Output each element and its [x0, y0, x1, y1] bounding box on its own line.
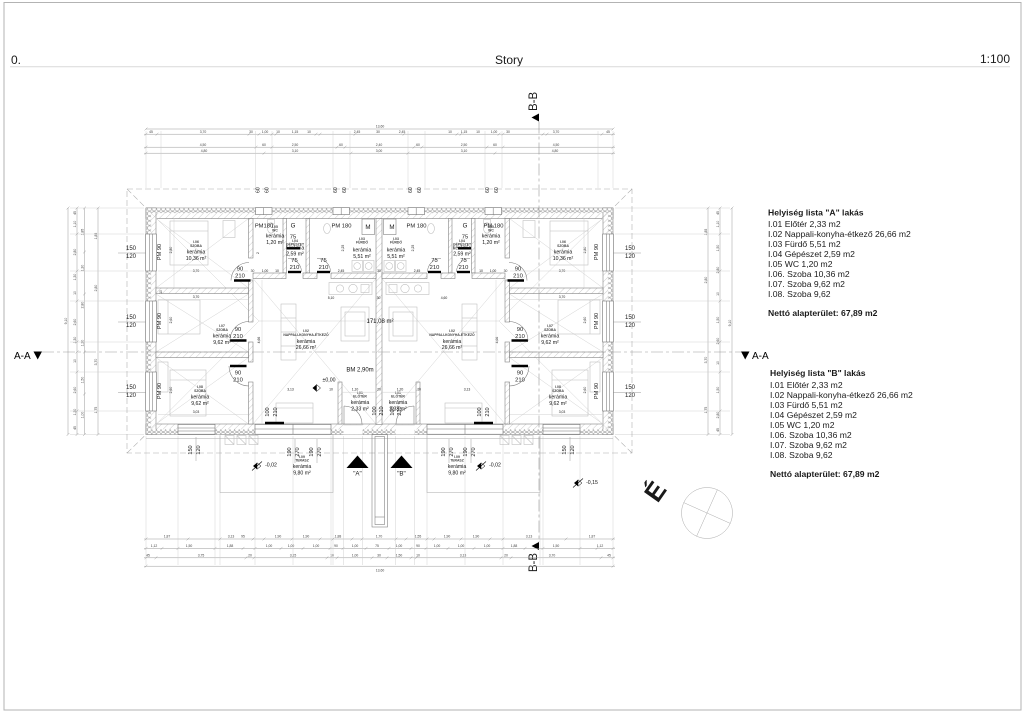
svg-text:kerámia: kerámia	[554, 250, 573, 256]
svg-text:45: 45	[73, 211, 77, 215]
svg-text:1,88: 1,88	[335, 535, 342, 539]
svg-text:45: 45	[149, 130, 153, 134]
svg-text:90: 90	[517, 327, 523, 333]
svg-text:1,00: 1,00	[491, 130, 498, 134]
svg-text:2,60: 2,60	[583, 387, 587, 394]
svg-text:2,33 m²: 2,33 m²	[351, 407, 369, 413]
svg-text:PM 180: PM 180	[407, 224, 427, 230]
svg-text:±0,00: ±0,00	[323, 378, 336, 384]
svg-text:-0,02: -0,02	[489, 463, 501, 469]
svg-text:SZOBA: SZOBA	[190, 244, 202, 248]
svg-text:1,00: 1,00	[396, 544, 403, 548]
svg-text:kerámia: kerámia	[482, 234, 501, 240]
svg-text:100: 100	[390, 406, 396, 415]
svg-text:ELŐTÉR: ELŐTÉR	[391, 394, 405, 399]
svg-text:60: 60	[416, 143, 420, 147]
svg-text:1,50: 1,50	[716, 317, 720, 324]
svg-text:1,50: 1,50	[716, 387, 720, 394]
svg-text:210: 210	[273, 407, 279, 416]
svg-text:270: 270	[295, 447, 301, 456]
svg-text:1,20 m²: 1,20 m²	[482, 240, 500, 246]
svg-text:B-B: B-B	[528, 553, 540, 573]
svg-text:90: 90	[517, 371, 523, 377]
svg-text:150: 150	[562, 445, 568, 454]
svg-text:210: 210	[430, 265, 440, 271]
svg-text:1,00: 1,00	[288, 544, 295, 548]
svg-text:1,75: 1,75	[704, 407, 708, 414]
svg-text:4,50: 4,50	[200, 143, 207, 147]
svg-text:45: 45	[606, 130, 610, 134]
svg-text:20: 20	[377, 387, 381, 391]
svg-text:1,00: 1,00	[458, 544, 465, 548]
svg-text:kerámia: kerámia	[389, 400, 408, 406]
svg-text:1,50: 1,50	[716, 245, 720, 252]
svg-text:TERASZ: TERASZ	[295, 459, 309, 463]
svg-text:150: 150	[625, 246, 636, 252]
svg-text:2,45: 2,45	[399, 130, 406, 134]
svg-text:10: 10	[716, 361, 720, 365]
svg-text:10: 10	[275, 269, 279, 273]
svg-text:G: G	[463, 223, 468, 230]
svg-text:60: 60	[262, 143, 266, 147]
svg-text:A-A: A-A	[14, 351, 31, 362]
svg-text:45: 45	[716, 428, 720, 432]
svg-text:1,12: 1,12	[151, 544, 158, 548]
svg-text:PM 90: PM 90	[157, 244, 163, 260]
svg-text:270: 270	[471, 447, 477, 456]
svg-text:10: 10	[716, 292, 720, 296]
svg-text:60: 60	[485, 187, 491, 193]
svg-text:-0,15: -0,15	[586, 480, 598, 486]
svg-text:2,60: 2,60	[169, 317, 173, 324]
svg-text:4,60: 4,60	[441, 296, 448, 300]
svg-text:100: 100	[372, 406, 378, 415]
svg-text:1,30: 1,30	[73, 337, 77, 344]
svg-text:1,50: 1,50	[396, 554, 403, 558]
svg-text:120: 120	[625, 254, 636, 260]
svg-text:2,45: 2,45	[414, 269, 421, 273]
svg-text:30: 30	[377, 269, 381, 273]
svg-text:PM 90: PM 90	[157, 313, 163, 329]
svg-text:2,60: 2,60	[169, 387, 173, 394]
svg-text:2,80: 2,80	[73, 249, 77, 256]
svg-text:210: 210	[513, 274, 523, 280]
svg-text:210: 210	[235, 274, 245, 280]
svg-text:4,66: 4,66	[495, 337, 499, 344]
svg-text:120: 120	[570, 445, 576, 454]
svg-text:10: 10	[329, 387, 333, 391]
svg-text:M: M	[389, 224, 394, 231]
svg-text:3,03: 3,03	[193, 410, 200, 414]
svg-text:2: 2	[256, 252, 260, 254]
svg-text:1,10: 1,10	[352, 387, 359, 391]
svg-text:kerámia: kerámia	[549, 395, 568, 401]
svg-text:3,13: 3,13	[526, 535, 533, 539]
svg-text:NAPPALI-KONYHA-ÉTKEZŐ: NAPPALI-KONYHA-ÉTKEZŐ	[283, 332, 329, 337]
svg-text:2,80: 2,80	[704, 277, 708, 284]
svg-text:1,90: 1,90	[444, 535, 451, 539]
svg-text:26,66 m²: 26,66 m²	[442, 345, 463, 351]
svg-text:210: 210	[290, 265, 300, 271]
svg-text:1,00: 1,00	[490, 269, 497, 273]
svg-text:2,45: 2,45	[354, 130, 361, 134]
svg-text:60: 60	[256, 187, 262, 193]
svg-text:1,00: 1,00	[352, 544, 359, 548]
svg-text:Helyiség lista "B" lakás: Helyiség lista "B" lakás	[770, 368, 866, 378]
svg-text:150: 150	[126, 385, 137, 391]
svg-text:30: 30	[376, 130, 380, 134]
svg-text:PM 90: PM 90	[594, 244, 600, 260]
svg-text:FÜRDŐ: FÜRDŐ	[390, 240, 402, 245]
svg-text:1,50: 1,50	[553, 544, 560, 548]
svg-text:9,62 m²: 9,62 m²	[213, 340, 231, 346]
svg-text:Nettó alapterület: 67,89 m2: Nettó alapterület: 67,89 m2	[768, 308, 878, 318]
svg-text:1,50: 1,50	[186, 544, 193, 548]
svg-text:9,10: 9,10	[64, 318, 68, 325]
svg-text:G: G	[291, 223, 296, 230]
svg-text:1,00: 1,00	[80, 412, 84, 419]
svg-text:I.01 Előtér 2,33 m2: I.01 Előtér 2,33 m2	[768, 219, 841, 229]
svg-text:5,10: 5,10	[328, 296, 335, 300]
svg-text:45: 45	[607, 554, 611, 558]
svg-text:PM 90: PM 90	[594, 313, 600, 329]
svg-text:2,80: 2,80	[94, 285, 98, 292]
svg-text:1,55: 1,55	[415, 535, 422, 539]
svg-text:95: 95	[241, 535, 245, 539]
svg-text:3,75: 3,75	[198, 554, 205, 558]
svg-text:10: 10	[479, 269, 483, 273]
svg-text:I.07. Szoba 9,62 m2: I.07. Szoba 9,62 m2	[770, 440, 847, 450]
svg-text:2,80: 2,80	[80, 302, 84, 309]
svg-text:1,87: 1,87	[164, 535, 171, 539]
svg-text:120: 120	[126, 254, 137, 260]
svg-text:1,20 m²: 1,20 m²	[266, 240, 284, 246]
svg-text:270: 270	[317, 447, 323, 456]
svg-text:30: 30	[377, 554, 381, 558]
svg-text:120: 120	[126, 393, 137, 399]
svg-text:1,20: 1,20	[397, 387, 404, 391]
svg-text:150: 150	[126, 246, 137, 252]
svg-text:2,50: 2,50	[461, 143, 468, 147]
svg-text:100: 100	[265, 407, 271, 416]
svg-text:120: 120	[625, 393, 636, 399]
svg-text:1,88: 1,88	[511, 544, 518, 548]
svg-text:"A": "A"	[353, 471, 362, 478]
svg-text:210: 210	[397, 406, 403, 415]
svg-text:2,60: 2,60	[716, 338, 720, 345]
svg-text:120: 120	[126, 323, 137, 329]
svg-text:PM 90: PM 90	[157, 383, 163, 399]
svg-text:SZOBA: SZOBA	[544, 328, 556, 332]
svg-text:9,62 m²: 9,62 m²	[191, 401, 209, 407]
svg-text:150: 150	[126, 315, 137, 321]
svg-text:SZOBA: SZOBA	[552, 389, 564, 393]
svg-text:90: 90	[416, 544, 420, 548]
svg-text:A-A: A-A	[752, 351, 769, 362]
svg-text:2,59 m²: 2,59 m²	[286, 252, 304, 258]
svg-text:0.: 0.	[11, 53, 21, 67]
svg-text:2,25: 2,25	[341, 245, 345, 252]
svg-text:270: 270	[449, 447, 455, 456]
svg-text:1,00: 1,00	[313, 544, 320, 548]
svg-text:10,36 m²: 10,36 m²	[553, 256, 574, 262]
svg-text:2,60: 2,60	[583, 317, 587, 324]
svg-text:1,90: 1,90	[303, 535, 310, 539]
svg-text:190: 190	[287, 447, 293, 456]
svg-text:2,25: 2,25	[411, 245, 415, 252]
svg-text:60: 60	[494, 187, 500, 193]
svg-text:1,85: 1,85	[94, 233, 98, 240]
svg-text:30: 30	[504, 269, 508, 273]
svg-text:210: 210	[459, 265, 469, 271]
svg-text:2,60: 2,60	[73, 387, 77, 394]
svg-text:1,10: 1,10	[716, 221, 720, 228]
svg-text:60: 60	[265, 187, 271, 193]
svg-text:1,90: 1,90	[275, 535, 282, 539]
svg-text:kerámia: kerámia	[387, 248, 406, 254]
svg-text:I.04 Gépészet 2,59 m2: I.04 Gépészet 2,59 m2	[770, 410, 857, 420]
svg-text:10: 10	[159, 290, 163, 294]
svg-text:26,66 m²: 26,66 m²	[296, 345, 317, 351]
svg-text:SZOBA: SZOBA	[216, 328, 228, 332]
svg-text:4,66: 4,66	[257, 337, 261, 344]
svg-text:10: 10	[448, 130, 452, 134]
svg-text:1:100: 1:100	[980, 52, 1010, 66]
svg-text:60: 60	[417, 187, 423, 193]
svg-text:9,80 m²: 9,80 m²	[293, 471, 311, 477]
svg-text:I.06. Szoba 10,36 m2: I.06. Szoba 10,36 m2	[768, 269, 850, 279]
svg-text:1,10: 1,10	[73, 221, 77, 228]
svg-text:60: 60	[339, 143, 343, 147]
svg-text:90: 90	[334, 544, 338, 548]
svg-text:5,51 m²: 5,51 m²	[387, 254, 405, 260]
svg-text:100: 100	[477, 407, 483, 416]
svg-text:I.08. Szoba 9,62: I.08. Szoba 9,62	[768, 289, 831, 299]
svg-text:3,13: 3,13	[228, 535, 235, 539]
svg-text:30: 30	[377, 296, 381, 300]
svg-text:45: 45	[716, 211, 720, 215]
svg-text:150: 150	[625, 315, 636, 321]
svg-text:10: 10	[417, 387, 421, 391]
svg-text:210: 210	[233, 334, 243, 340]
svg-text:2,80: 2,80	[716, 412, 720, 419]
svg-text:2,59 m²: 2,59 m²	[453, 252, 471, 258]
svg-text:I.03 Fürdő 5,51 m2: I.03 Fürdő 5,51 m2	[768, 239, 841, 249]
svg-text:SZOBA: SZOBA	[194, 389, 206, 393]
svg-text:60: 60	[333, 187, 339, 193]
svg-text:210: 210	[319, 265, 329, 271]
svg-text:30: 30	[251, 269, 255, 273]
svg-text:I.08. Szoba 9,62: I.08. Szoba 9,62	[770, 450, 833, 460]
svg-text:90: 90	[235, 327, 241, 333]
svg-text:1,30: 1,30	[80, 340, 84, 347]
svg-text:120: 120	[196, 445, 202, 454]
svg-text:171,08 m²: 171,08 m²	[366, 319, 393, 325]
svg-text:9,80 m²: 9,80 m²	[448, 471, 466, 477]
svg-text:3,70: 3,70	[94, 359, 98, 366]
svg-text:13,60: 13,60	[376, 124, 385, 128]
svg-text:BM 2,90m: BM 2,90m	[346, 368, 373, 374]
svg-text:3,10: 3,10	[292, 149, 299, 153]
svg-text:10: 10	[307, 130, 311, 134]
svg-text:10: 10	[73, 359, 77, 363]
svg-text:kerámia: kerámia	[448, 464, 467, 470]
svg-text:M: M	[365, 224, 370, 231]
svg-text:Story: Story	[495, 53, 523, 67]
svg-text:2,80: 2,80	[583, 247, 587, 254]
svg-text:10: 10	[73, 291, 77, 295]
svg-text:1,88: 1,88	[227, 544, 234, 548]
svg-text:PM 180: PM 180	[484, 224, 504, 230]
svg-text:9,62 m²: 9,62 m²	[541, 340, 559, 346]
svg-text:2,50: 2,50	[292, 143, 299, 147]
svg-text:kerámia: kerámia	[353, 248, 372, 254]
svg-text:10: 10	[476, 130, 480, 134]
svg-text:TERASZ: TERASZ	[450, 459, 464, 463]
svg-text:1,85: 1,85	[80, 229, 84, 236]
svg-text:PM 90: PM 90	[594, 383, 600, 399]
svg-text:210: 210	[515, 334, 525, 340]
svg-text:I.02 Nappali-konyha-étkező 26,: I.02 Nappali-konyha-étkező 26,66 m2	[768, 229, 911, 239]
svg-text:190: 190	[463, 447, 469, 456]
svg-text:3,70: 3,70	[200, 130, 207, 134]
svg-text:Helyiség lista "A" lakás: Helyiség lista "A" lakás	[768, 208, 864, 218]
svg-text:1,00: 1,00	[434, 544, 441, 548]
svg-text:I.06. Szoba 10,36 m2: I.06. Szoba 10,36 m2	[770, 430, 852, 440]
svg-text:3,13: 3,13	[460, 554, 467, 558]
svg-text:"B": "B"	[397, 471, 406, 478]
svg-text:190: 190	[309, 447, 315, 456]
svg-text:1,85: 1,85	[704, 229, 708, 236]
svg-text:Nettó alapterület: 67,89 m2: Nettó alapterület: 67,89 m2	[770, 469, 880, 479]
svg-text:3,70: 3,70	[704, 357, 708, 364]
svg-text:4,80: 4,80	[201, 149, 208, 153]
svg-text:9,10: 9,10	[728, 320, 732, 327]
svg-text:3,13: 3,13	[287, 387, 294, 391]
svg-text:PM 180: PM 180	[332, 224, 352, 230]
svg-text:1,90: 1,90	[473, 535, 480, 539]
svg-text:3,13: 3,13	[464, 387, 471, 391]
svg-text:1,70: 1,70	[376, 535, 383, 539]
svg-text:kerámia: kerámia	[213, 334, 232, 340]
svg-text:1,50: 1,50	[80, 377, 84, 384]
svg-text:3,03: 3,03	[559, 410, 566, 414]
svg-text:60: 60	[408, 187, 414, 193]
svg-text:2,40: 2,40	[376, 143, 383, 147]
svg-text:1,00: 1,00	[262, 130, 269, 134]
svg-text:kerámia: kerámia	[266, 234, 285, 240]
svg-text:75: 75	[462, 235, 468, 241]
svg-text:I.01 Előtér 2,33 m2: I.01 Előtér 2,33 m2	[770, 380, 843, 390]
svg-text:4,80: 4,80	[552, 149, 559, 153]
svg-text:10,36 m²: 10,36 m²	[186, 256, 207, 262]
svg-text:FÜRDŐ: FÜRDŐ	[356, 240, 368, 245]
svg-text:kerámia: kerámia	[293, 464, 312, 470]
svg-text:150: 150	[188, 445, 194, 454]
svg-text:45: 45	[73, 426, 77, 430]
svg-text:ELŐTÉR: ELŐTÉR	[353, 394, 367, 399]
svg-text:I.03 Fürdő 5,51 m2: I.03 Fürdő 5,51 m2	[770, 400, 843, 410]
svg-text:10: 10	[330, 554, 334, 558]
svg-text:kerámia: kerámia	[191, 395, 210, 401]
svg-text:3,70: 3,70	[549, 554, 556, 558]
svg-text:1,15: 1,15	[292, 130, 299, 134]
svg-text:1,00: 1,00	[352, 554, 359, 558]
svg-text:30: 30	[506, 130, 510, 134]
svg-text:SZOBA: SZOBA	[557, 244, 569, 248]
svg-text:1,75: 1,75	[94, 407, 98, 414]
svg-text:I.05 WC 1,20 m2: I.05 WC 1,20 m2	[768, 259, 833, 269]
svg-text:13,60: 13,60	[376, 569, 385, 573]
svg-text:3,70: 3,70	[559, 295, 566, 299]
svg-text:210: 210	[485, 407, 491, 416]
svg-text:4,50: 4,50	[553, 143, 560, 147]
svg-text:1,30: 1,30	[80, 265, 84, 272]
svg-text:1,00: 1,00	[484, 544, 491, 548]
svg-text:3,10: 3,10	[461, 149, 468, 153]
svg-text:190: 190	[441, 447, 447, 456]
svg-text:kerámia: kerámia	[351, 400, 370, 406]
svg-text:2,80: 2,80	[169, 247, 173, 254]
svg-text:9,62 m²: 9,62 m²	[549, 401, 567, 407]
svg-text:I.05 WC 1,20 m2: I.05 WC 1,20 m2	[770, 420, 835, 430]
svg-text:1,00: 1,00	[266, 544, 273, 548]
svg-text:1,00: 1,00	[262, 269, 269, 273]
svg-text:NAPPALI-KONYHA-ÉTKEZŐ: NAPPALI-KONYHA-ÉTKEZŐ	[429, 332, 475, 337]
svg-text:kerámia: kerámia	[541, 334, 560, 340]
svg-text:PM180: PM180	[255, 224, 273, 230]
svg-text:20: 20	[504, 554, 508, 558]
svg-text:20: 20	[248, 554, 252, 558]
svg-text:60: 60	[493, 143, 497, 147]
svg-text:1,87: 1,87	[589, 535, 596, 539]
svg-text:kerámia: kerámia	[187, 250, 206, 256]
svg-text:90: 90	[237, 267, 243, 273]
svg-text:2,45: 2,45	[338, 269, 345, 273]
svg-text:75: 75	[290, 235, 296, 241]
svg-text:2,80: 2,80	[716, 267, 720, 274]
svg-text:75: 75	[375, 544, 379, 548]
svg-text:150: 150	[625, 385, 636, 391]
svg-text:90: 90	[235, 371, 241, 377]
svg-text:2,60: 2,60	[73, 319, 77, 326]
svg-text:5,51 m²: 5,51 m²	[353, 254, 371, 260]
svg-text:3,70: 3,70	[553, 130, 560, 134]
svg-text:I.02 Nappali-konyha-étkező 26,: I.02 Nappali-konyha-étkező 26,66 m2	[770, 390, 913, 400]
svg-text:B-B: B-B	[528, 92, 540, 112]
svg-text:3,70: 3,70	[193, 295, 200, 299]
svg-text:120: 120	[625, 323, 636, 329]
svg-text:90: 90	[515, 267, 521, 273]
svg-text:I.04 Gépészet 2,59 m2: I.04 Gépészet 2,59 m2	[768, 249, 855, 259]
svg-text:3,00: 3,00	[376, 149, 383, 153]
svg-text:210: 210	[379, 406, 385, 415]
svg-text:-0,02: -0,02	[265, 463, 277, 469]
svg-text:60: 60	[342, 187, 348, 193]
svg-text:I.07. Szoba 9,62 m2: I.07. Szoba 9,62 m2	[768, 279, 845, 289]
svg-text:1,30: 1,30	[73, 274, 77, 281]
